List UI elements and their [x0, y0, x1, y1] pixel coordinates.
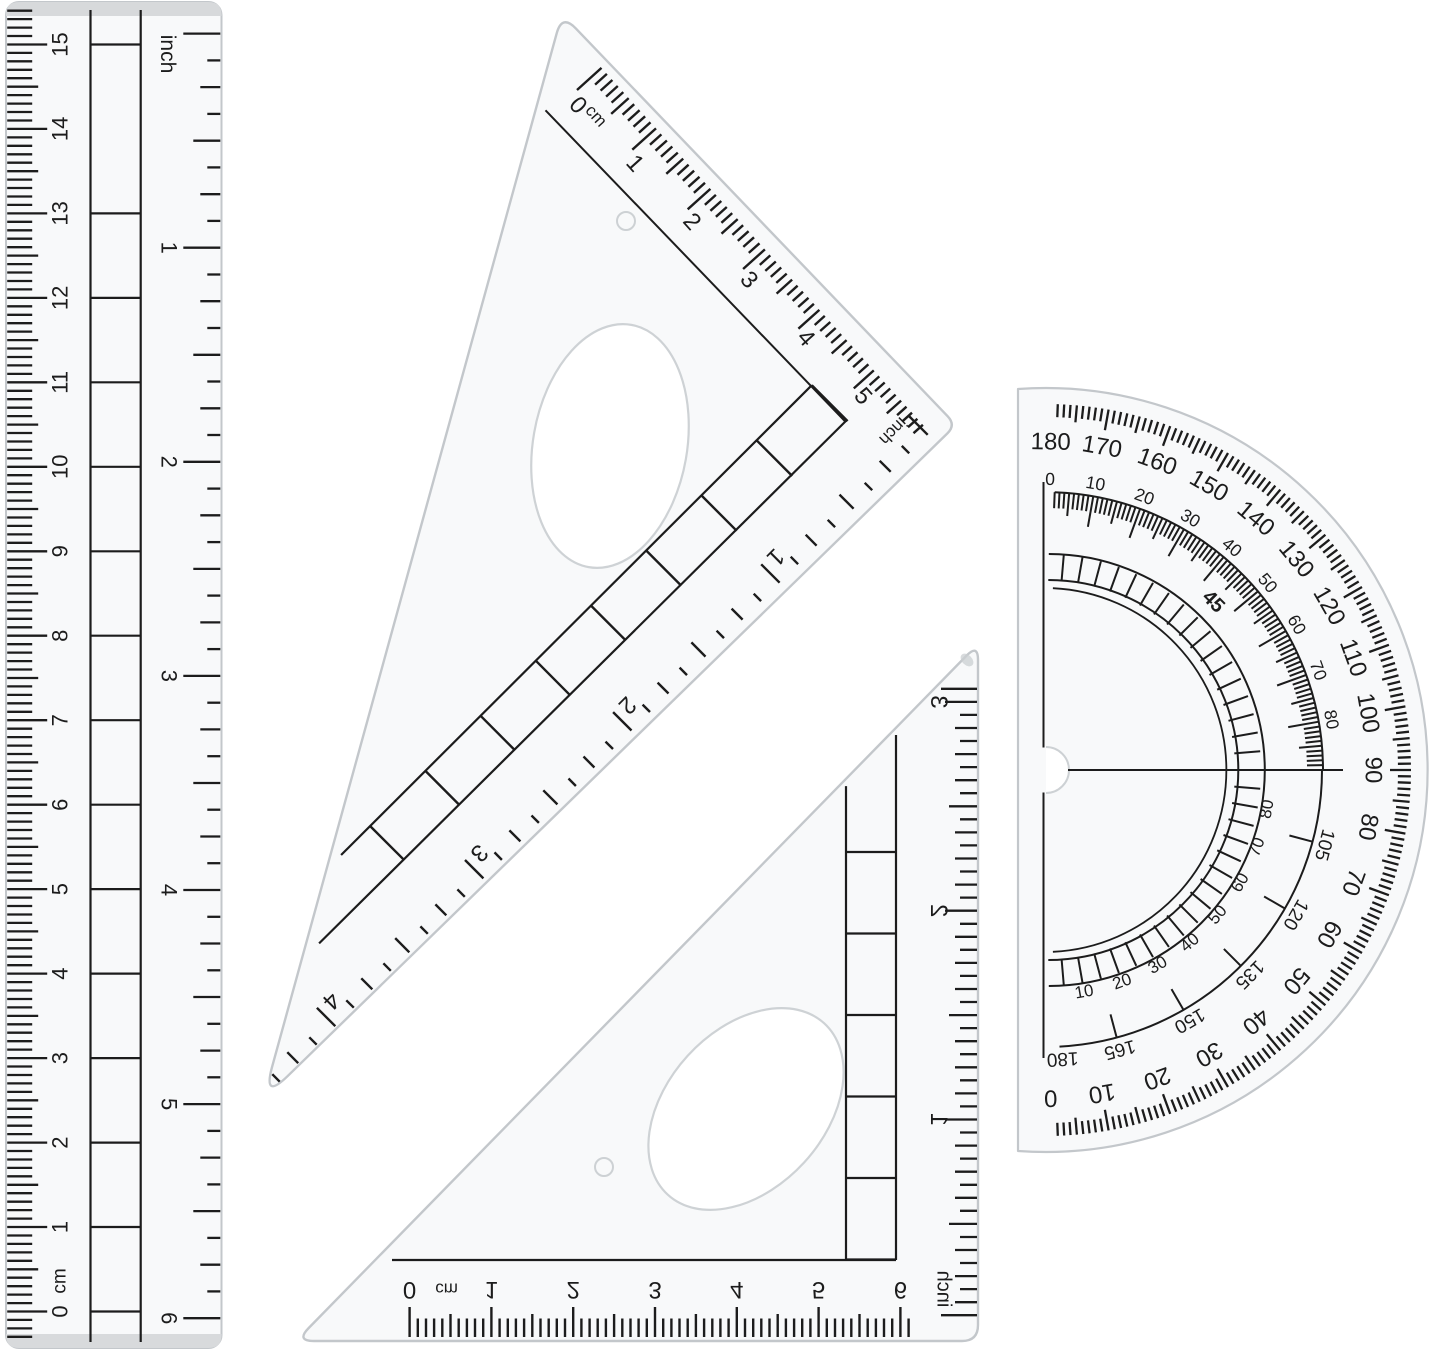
svg-text:7: 7: [48, 714, 73, 726]
svg-text:3: 3: [157, 670, 182, 682]
svg-text:1: 1: [485, 1276, 498, 1303]
svg-text:1: 1: [157, 242, 182, 254]
svg-text:3: 3: [648, 1276, 661, 1303]
svg-text:2: 2: [48, 1136, 73, 1148]
svg-text:cm: cm: [50, 1268, 71, 1293]
svg-text:3: 3: [48, 1052, 73, 1064]
svg-text:inch: inch: [933, 1271, 955, 1308]
svg-text:2: 2: [567, 1276, 580, 1303]
svg-text:90: 90: [1360, 757, 1387, 784]
svg-text:10: 10: [1073, 981, 1095, 1003]
svg-text:6: 6: [894, 1276, 907, 1303]
svg-text:0: 0: [1045, 469, 1055, 489]
svg-text:14: 14: [48, 117, 73, 141]
svg-text:10: 10: [48, 455, 73, 479]
svg-text:180: 180: [1030, 428, 1071, 456]
svg-text:4: 4: [48, 967, 73, 979]
svg-text:0: 0: [1044, 1084, 1058, 1111]
svg-text:0: 0: [48, 1305, 73, 1317]
svg-text:inch: inch: [156, 35, 179, 74]
svg-text:8: 8: [48, 630, 73, 642]
svg-text:4: 4: [730, 1276, 743, 1303]
svg-text:9: 9: [48, 545, 73, 557]
svg-text:80: 80: [1256, 798, 1278, 820]
svg-text:6: 6: [157, 1312, 182, 1324]
svg-text:2: 2: [157, 456, 182, 468]
svg-text:10: 10: [1087, 1077, 1118, 1108]
svg-text:6: 6: [48, 799, 73, 811]
svg-text:3: 3: [925, 695, 952, 708]
svg-text:1: 1: [925, 1113, 952, 1126]
svg-text:15: 15: [48, 32, 73, 56]
svg-text:11: 11: [48, 371, 73, 394]
svg-text:1: 1: [48, 1221, 73, 1233]
svg-text:13: 13: [48, 201, 73, 225]
svg-text:cm: cm: [435, 1280, 458, 1299]
svg-text:2: 2: [925, 904, 952, 917]
svg-text:5: 5: [48, 883, 73, 895]
svg-text:80: 80: [1320, 708, 1343, 731]
svg-text:180: 180: [1046, 1047, 1079, 1070]
svg-text:10: 10: [1084, 472, 1107, 495]
svg-text:12: 12: [48, 286, 73, 310]
svg-text:80: 80: [1352, 812, 1383, 843]
svg-text:0: 0: [403, 1276, 416, 1303]
svg-text:5: 5: [812, 1276, 825, 1303]
svg-text:4: 4: [157, 884, 182, 896]
svg-text:5: 5: [157, 1098, 182, 1110]
